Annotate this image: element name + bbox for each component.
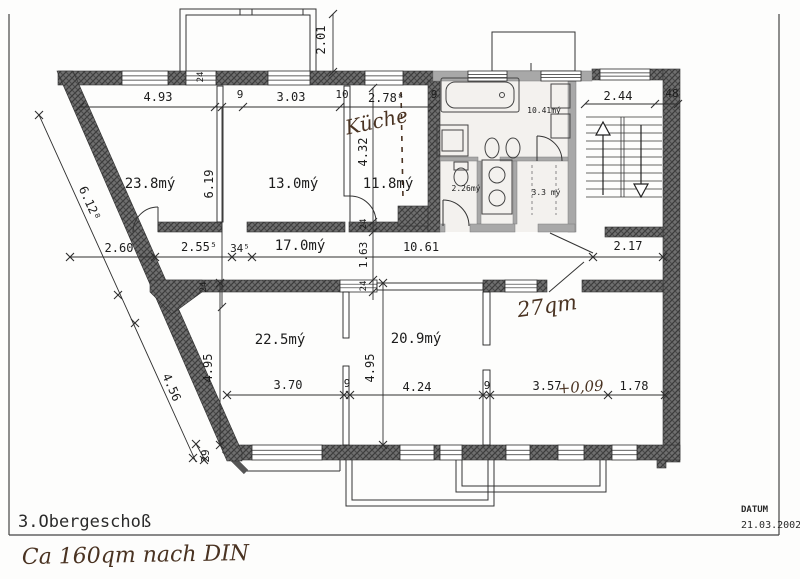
wall-segment [322, 445, 400, 460]
dim-label: 1.63 [357, 242, 370, 269]
dim-label: 6.12⁸ [76, 184, 103, 223]
dim-label: 29 [199, 449, 212, 462]
window [468, 71, 507, 81]
window [365, 71, 403, 85]
chimney-block [398, 206, 428, 226]
wall-segment [592, 69, 600, 80]
dim-label: 10 [335, 88, 348, 101]
room-area-label: 3.3 mý [532, 188, 561, 197]
room-area-label: 10.41mý [527, 106, 561, 115]
dim-label: 4.95 [363, 354, 377, 383]
door-arc-room-11 [350, 196, 376, 222]
window [541, 71, 581, 81]
partition-segment [538, 224, 575, 232]
handwritten-note: Küche [342, 103, 410, 140]
dim-label: 6.19 [202, 170, 216, 199]
balcony-top [180, 9, 316, 71]
partition-segment [568, 81, 576, 232]
handwritten-note: 27qm [515, 290, 579, 322]
dim-label: 3.03 [277, 90, 306, 104]
room-area-label: 22.5mý [255, 332, 306, 348]
datum-label: DATUM [741, 505, 769, 515]
dim-label: 48 [665, 87, 678, 100]
dim-label: 1.78 [620, 379, 649, 393]
dim-label: 3.70 [274, 378, 303, 392]
dim-label: 24 [199, 282, 209, 293]
wall-segment [605, 227, 663, 237]
dim-label: 34⁵ [230, 242, 250, 255]
window [612, 445, 637, 460]
dim-label: 10.61 [403, 240, 439, 254]
wall-segment [663, 69, 680, 462]
wall-segment [637, 445, 680, 460]
wall-segment [483, 280, 505, 292]
dim-label: 2.44 [604, 89, 633, 103]
dim-label: 2.60 [105, 241, 134, 255]
partition-segment [470, 224, 515, 232]
dim-label: 4.93 [144, 90, 173, 104]
wall-segment [537, 280, 547, 292]
thin-wall [483, 292, 490, 345]
stair-up-arrow [596, 122, 610, 135]
window [558, 445, 584, 460]
staircase [586, 117, 662, 197]
partition-segment [440, 157, 478, 161]
partition-segment [507, 71, 541, 81]
corridor-door-leaf [549, 262, 584, 292]
partition-segment [433, 71, 468, 81]
wall-segment [310, 71, 365, 85]
wall-segment [530, 445, 558, 460]
dim-label: 24 [359, 219, 369, 230]
handwritten-note: +0,09 [557, 376, 605, 397]
room-area-label: 13.0mý [268, 176, 319, 192]
partition-segment [513, 161, 517, 224]
floor-title: 3.Obergeschoß [18, 512, 151, 532]
dim-label: 2.01 [314, 26, 328, 55]
light-shaft-top [492, 32, 575, 71]
wall-segment [434, 445, 440, 460]
wall-segment [582, 280, 663, 292]
window [268, 71, 310, 85]
dim-label: 4.95 [201, 354, 215, 383]
window [400, 445, 434, 460]
floor-plan-page: 4.9393.03102.78⁸92.44482.016.194.321.632… [0, 0, 800, 579]
thin-wall [377, 283, 483, 290]
wall-segment [650, 69, 663, 80]
dim-label: 2.78⁸ [368, 91, 404, 105]
floor-plan-drawing: 4.9393.03102.78⁸92.44482.016.194.321.632… [0, 0, 800, 579]
window [252, 445, 322, 460]
dim-label: 4.24 [403, 380, 432, 394]
dim-label: 2.55⁵ [181, 240, 217, 254]
wall-segment [168, 71, 186, 85]
handwritten-note: Ca 160qm nach DIN [22, 541, 250, 570]
room-area-label: 23.8mý [125, 176, 176, 192]
dim-label: 9 [237, 88, 244, 101]
title-block: 3.Obergeschoß DATUM 21.03.2002 [18, 505, 800, 532]
dim-label: 24 [359, 281, 369, 292]
room-area-label: 11.8mý [363, 176, 414, 192]
partition-segment [581, 71, 592, 81]
wall-segment [462, 445, 506, 460]
wall-junction [150, 280, 202, 314]
dim-label: 9 [344, 377, 351, 390]
dim-label: 9 [484, 379, 491, 392]
room-area-label: 2.26mý [452, 184, 481, 193]
wall-segment [158, 222, 222, 232]
window [600, 69, 650, 80]
datum-value: 21.03.2002 [741, 520, 800, 531]
stair-down-arrow [634, 184, 648, 197]
wall-segment [657, 460, 666, 468]
thin-wall [344, 86, 350, 196]
wall-segment [247, 222, 345, 232]
entrance-door-leaf [550, 233, 593, 253]
dim-label: 4.56 [159, 371, 184, 403]
dim-label: 2.17 [614, 239, 643, 253]
dim-label: 9 [431, 88, 438, 101]
dim-label: 24 [196, 72, 206, 83]
dim-label: 4.32 [356, 138, 370, 167]
window [440, 445, 462, 460]
wall-segment [584, 445, 612, 460]
room-area-label: 17.0mý [275, 238, 326, 254]
window [122, 71, 168, 85]
wall-segment [216, 71, 268, 85]
room-area-label: 20.9mý [391, 331, 442, 347]
balcony-bottom-center [346, 453, 606, 506]
window [505, 280, 537, 292]
diagonal-outer-wall [57, 71, 242, 461]
window [506, 445, 530, 460]
thin-wall [343, 292, 349, 338]
